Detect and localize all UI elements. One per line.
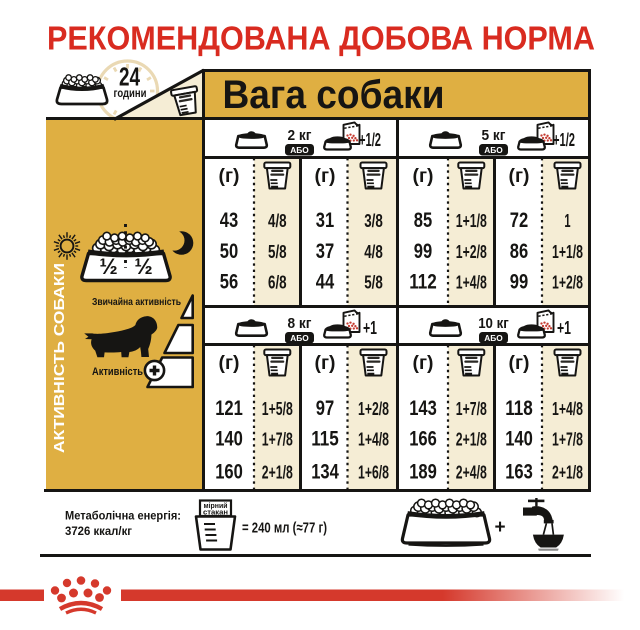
svg-text:99: 99 — [414, 240, 432, 263]
svg-text:+: + — [495, 517, 506, 538]
svg-text:(г): (г) — [315, 166, 336, 187]
svg-text:8 кг: 8 кг — [288, 316, 312, 332]
svg-text:5/8: 5/8 — [364, 273, 383, 293]
svg-text:3726 ккал/кг: 3726 ккал/кг — [65, 526, 132, 538]
svg-text:134: 134 — [311, 461, 339, 484]
svg-text:години: години — [114, 86, 147, 100]
svg-text:АБО: АБО — [484, 146, 503, 155]
svg-text:АБО: АБО — [290, 334, 309, 343]
svg-text:стакан: стакан — [203, 510, 228, 517]
svg-text:6/8: 6/8 — [268, 273, 287, 293]
svg-text:5/8: 5/8 — [268, 242, 287, 262]
svg-text:(г): (г) — [413, 166, 434, 187]
svg-text:(г): (г) — [315, 353, 336, 374]
svg-text:1+4/8: 1+4/8 — [552, 399, 583, 419]
svg-text:1+6/8: 1+6/8 — [358, 463, 389, 483]
svg-text:4/8: 4/8 — [268, 211, 287, 231]
svg-text:1+7/8: 1+7/8 — [552, 430, 583, 450]
svg-text:(г): (г) — [219, 353, 240, 374]
svg-text:1+7/8: 1+7/8 — [262, 430, 293, 450]
svg-text:АКТИВНІСТЬ СОБАКИ: АКТИВНІСТЬ СОБАКИ — [51, 263, 68, 453]
svg-text:1+4/8: 1+4/8 — [358, 430, 389, 450]
svg-text:1+1/8: 1+1/8 — [456, 211, 487, 231]
svg-text:1+2/8: 1+2/8 — [358, 399, 389, 419]
svg-text:2+1/8: 2+1/8 — [552, 463, 583, 483]
svg-text:мірний: мірний — [204, 502, 228, 510]
svg-text:2+1/8: 2+1/8 — [456, 430, 487, 450]
svg-text:2+1/8: 2+1/8 — [262, 463, 293, 483]
svg-text:163: 163 — [505, 461, 533, 484]
svg-text:121: 121 — [215, 397, 243, 420]
svg-text:2+4/8: 2+4/8 — [456, 463, 487, 483]
svg-text:+1/2: +1/2 — [359, 130, 381, 150]
svg-text:85: 85 — [414, 209, 433, 232]
svg-text:3/8: 3/8 — [364, 211, 383, 231]
svg-text:1+7/8: 1+7/8 — [456, 399, 487, 419]
svg-text:+1: +1 — [363, 318, 377, 338]
svg-text:50: 50 — [220, 240, 238, 263]
svg-text:Активність: Активність — [92, 366, 143, 378]
svg-text:РЕКОМЕНДОВАНА ДОБОВА НОРМА: РЕКОМЕНДОВАНА ДОБОВА НОРМА — [47, 21, 595, 58]
svg-text:1+2/8: 1+2/8 — [456, 242, 487, 262]
svg-text:+1/2: +1/2 — [553, 130, 575, 150]
svg-text:31: 31 — [316, 209, 335, 232]
svg-text:Метаболічна енергія:: Метаболічна енергія: — [65, 511, 181, 523]
svg-text:140: 140 — [215, 428, 243, 451]
svg-text:= 240 мл (≈77 г): = 240 мл (≈77 г) — [242, 520, 327, 537]
svg-text:5 кг: 5 кг — [482, 128, 506, 144]
svg-text:1+2/8: 1+2/8 — [552, 273, 583, 293]
svg-text:72: 72 — [510, 209, 528, 232]
svg-text:97: 97 — [316, 397, 334, 420]
svg-text:143: 143 — [409, 397, 437, 420]
svg-text:АБО: АБО — [290, 146, 309, 155]
svg-text:(г): (г) — [219, 166, 240, 187]
svg-text:86: 86 — [510, 240, 528, 263]
svg-text:+1: +1 — [557, 318, 571, 338]
svg-text:115: 115 — [311, 428, 339, 451]
svg-text:(г): (г) — [509, 353, 530, 374]
svg-text:56: 56 — [220, 271, 238, 294]
svg-text:½: ½ — [134, 254, 152, 279]
svg-text:43: 43 — [220, 209, 238, 232]
svg-text:1+5/8: 1+5/8 — [262, 399, 293, 419]
svg-text:1+1/8: 1+1/8 — [552, 242, 583, 262]
svg-text:112: 112 — [409, 271, 437, 294]
svg-text:Вага собаки: Вага собаки — [223, 73, 445, 117]
svg-text:2 кг: 2 кг — [288, 128, 312, 144]
svg-text:1: 1 — [564, 211, 570, 231]
svg-text:99: 99 — [510, 271, 528, 294]
svg-text:АБО: АБО — [484, 334, 503, 343]
svg-text:160: 160 — [215, 461, 243, 484]
svg-text:189: 189 — [409, 461, 437, 484]
svg-text:10 кг: 10 кг — [478, 316, 509, 332]
svg-text:1+4/8: 1+4/8 — [456, 273, 487, 293]
svg-text:(г): (г) — [413, 353, 434, 374]
svg-text:37: 37 — [316, 240, 334, 263]
svg-text:166: 166 — [409, 428, 437, 451]
svg-text:44: 44 — [316, 271, 335, 294]
svg-text:4/8: 4/8 — [364, 242, 383, 262]
svg-text:140: 140 — [505, 428, 533, 451]
svg-text:118: 118 — [505, 397, 533, 420]
svg-text:½: ½ — [99, 254, 117, 279]
svg-text:(г): (г) — [509, 166, 530, 187]
svg-text:Звичайна активність: Звичайна активність — [92, 296, 181, 308]
